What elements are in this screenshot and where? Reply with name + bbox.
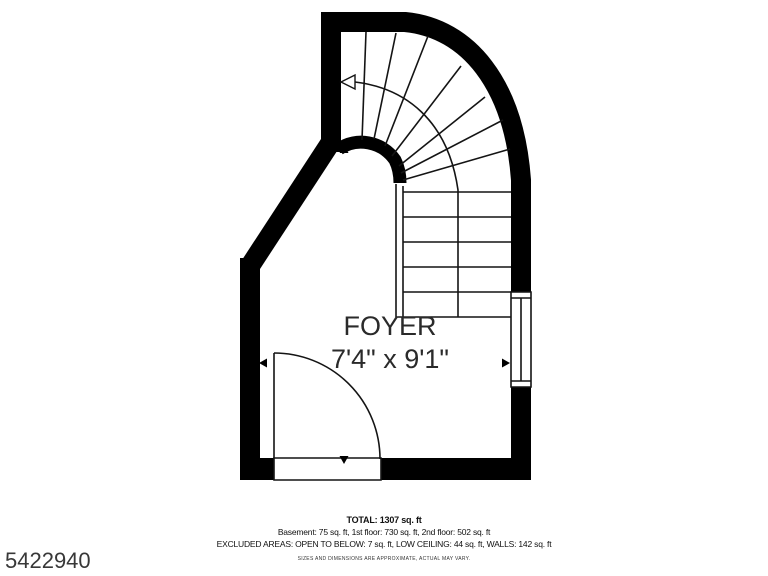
- disclaimer-text: SIZES AND DIMENSIONS ARE APPROXIMATE, AC…: [0, 556, 768, 562]
- listing-id-text: 5422940: [5, 548, 91, 574]
- stair-direction-arrow-icon: [341, 75, 355, 89]
- stair-walkline: [355, 82, 458, 317]
- floor-plan-drawing: [0, 0, 768, 576]
- stair-winder-line: [392, 66, 461, 156]
- top-curved-wall: [321, 22, 521, 480]
- floor-breakdown-text: Basement: 75 sq. ft, 1st floor: 730 sq. …: [0, 526, 768, 538]
- entry-door-opening: [274, 458, 381, 480]
- stair-winder-line: [399, 97, 485, 166]
- diagonal-wall: [250, 142, 331, 266]
- room-dimensions-label: 7'4" x 9'1": [240, 343, 540, 376]
- excluded-areas-text: EXCLUDED AREAS: OPEN TO BELOW: 7 sq. ft,…: [0, 538, 768, 550]
- area-summary: TOTAL: 1307 sq. ft Basement: 75 sq. ft, …: [0, 514, 768, 562]
- room-label: FOYER 7'4" x 9'1": [240, 310, 540, 376]
- room-name-label: FOYER: [240, 310, 540, 343]
- stair-winder-line: [362, 32, 366, 140]
- floor-plan-page: FOYER 7'4" x 9'1" TOTAL: 1307 sq. ft Bas…: [0, 0, 768, 576]
- total-area-text: TOTAL: 1307 sq. ft: [0, 514, 768, 526]
- stair-center-wall: [339, 142, 400, 183]
